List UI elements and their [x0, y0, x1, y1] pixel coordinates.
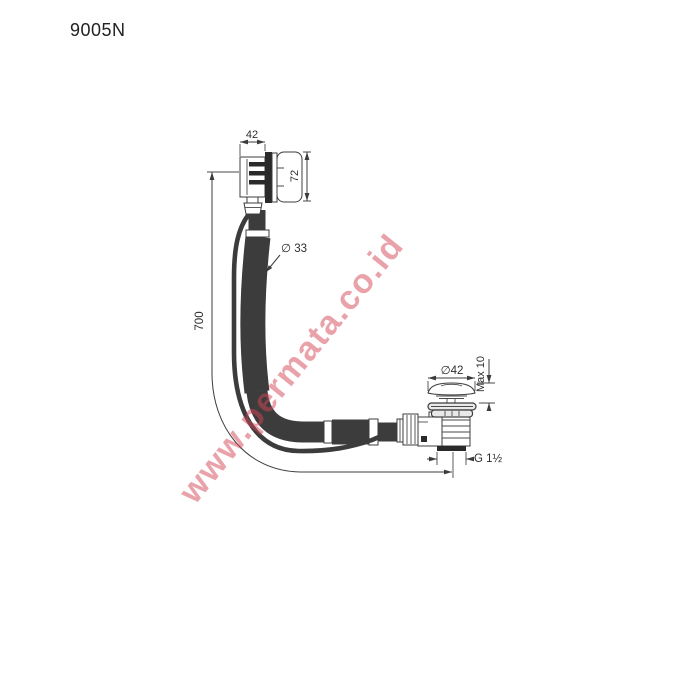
- dim-plug-max-height-label: Max 10: [475, 356, 487, 392]
- valve-waste-cylinder: [442, 414, 470, 446]
- dim-overflow-width: 42: [240, 129, 265, 156]
- dim-hose-diameter-label: ∅ 33: [281, 243, 307, 255]
- hose-collar: [246, 230, 269, 237]
- hose-collar: [324, 421, 332, 443]
- dim-hose-diameter: ∅ 33: [266, 243, 307, 272]
- valve-inlet-nut: [403, 414, 418, 445]
- dim-outlet-thread: G 1½: [427, 452, 503, 465]
- dim-hose-length-label: 700: [194, 311, 206, 330]
- overflow-elbow-nut: [244, 203, 262, 214]
- valve-outlet-flange: [437, 446, 466, 451]
- overflow-gasket: [265, 152, 272, 203]
- dim-plug-max-height: Max 10: [475, 356, 495, 411]
- dim-outlet-thread-label: G 1½: [474, 453, 503, 465]
- dim-overflow-height-label: 72: [289, 170, 301, 182]
- dim-overflow-width-label: 42: [246, 129, 258, 141]
- page: 9005N 700: [0, 0, 700, 700]
- technical-drawing: 700: [0, 0, 700, 700]
- dim-plug-diameter-label: ∅42: [441, 365, 464, 377]
- waste-valve-drawing: [397, 383, 476, 451]
